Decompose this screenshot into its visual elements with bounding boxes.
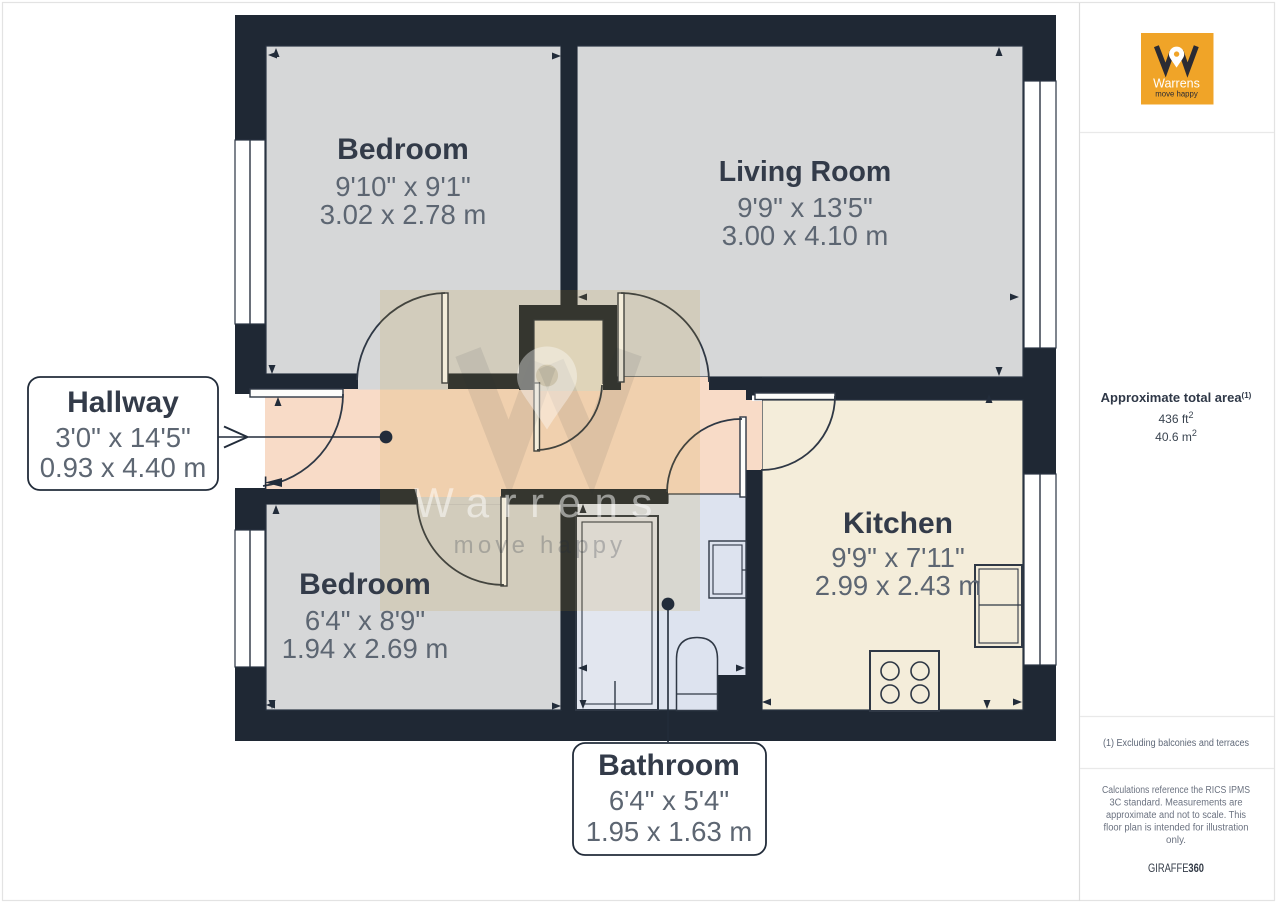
svg-text:Kitchen: Kitchen: [843, 507, 953, 540]
svg-text:3'0" x 14'5": 3'0" x 14'5": [55, 422, 191, 453]
svg-text:Hallway: Hallway: [67, 386, 179, 419]
svg-text:6'4" x 5'4": 6'4" x 5'4": [609, 785, 729, 816]
svg-text:only.: only.: [1166, 835, 1186, 846]
svg-text:Living Room: Living Room: [719, 156, 892, 188]
svg-text:3.02 x 2.78 m: 3.02 x 2.78 m: [320, 199, 487, 230]
svg-text:move happy: move happy: [454, 532, 627, 559]
svg-text:GIRAFFE360: GIRAFFE360: [1148, 861, 1204, 875]
svg-text:floor plan is intended for ill: floor plan is intended for illustration: [1104, 823, 1249, 834]
svg-text:1.94 x 2.69 m: 1.94 x 2.69 m: [282, 633, 449, 664]
svg-text:Warrens: Warrens: [414, 479, 666, 526]
svg-text:Bedroom: Bedroom: [299, 568, 431, 601]
svg-text:move happy: move happy: [1155, 90, 1198, 99]
svg-text:Calculations reference the RIC: Calculations reference the RICS IPMS: [1102, 785, 1250, 796]
svg-text:40.6 m2: 40.6 m2: [1155, 428, 1197, 444]
svg-text:approximate and not to scale.: approximate and not to scale. This: [1106, 810, 1246, 821]
svg-text:Warrens: Warrens: [1153, 77, 1200, 91]
svg-text:9'10" x 9'1": 9'10" x 9'1": [335, 171, 471, 202]
svg-text:9'9" x 7'11": 9'9" x 7'11": [831, 542, 965, 573]
svg-text:1.95 x 1.63 m: 1.95 x 1.63 m: [586, 816, 753, 847]
svg-text:0.93 x 4.40 m: 0.93 x 4.40 m: [40, 452, 207, 483]
svg-text:(1) Excluding balconies and te: (1) Excluding balconies and terraces: [1103, 738, 1249, 749]
svg-text:9'9" x 13'5": 9'9" x 13'5": [737, 192, 873, 223]
svg-text:Bathroom: Bathroom: [598, 749, 740, 782]
svg-text:436 ft2: 436 ft2: [1158, 410, 1193, 426]
svg-text:3C standard. Measurements are: 3C standard. Measurements are: [1110, 798, 1244, 809]
svg-text:6'4" x 8'9": 6'4" x 8'9": [305, 605, 425, 636]
svg-text:2.99 x 2.43 m: 2.99 x 2.43 m: [815, 570, 982, 601]
svg-text:3.00 x 4.10 m: 3.00 x 4.10 m: [722, 220, 889, 251]
svg-text:Approximate total area(1): Approximate total area(1): [1101, 390, 1252, 405]
svg-text:Bedroom: Bedroom: [337, 133, 469, 166]
